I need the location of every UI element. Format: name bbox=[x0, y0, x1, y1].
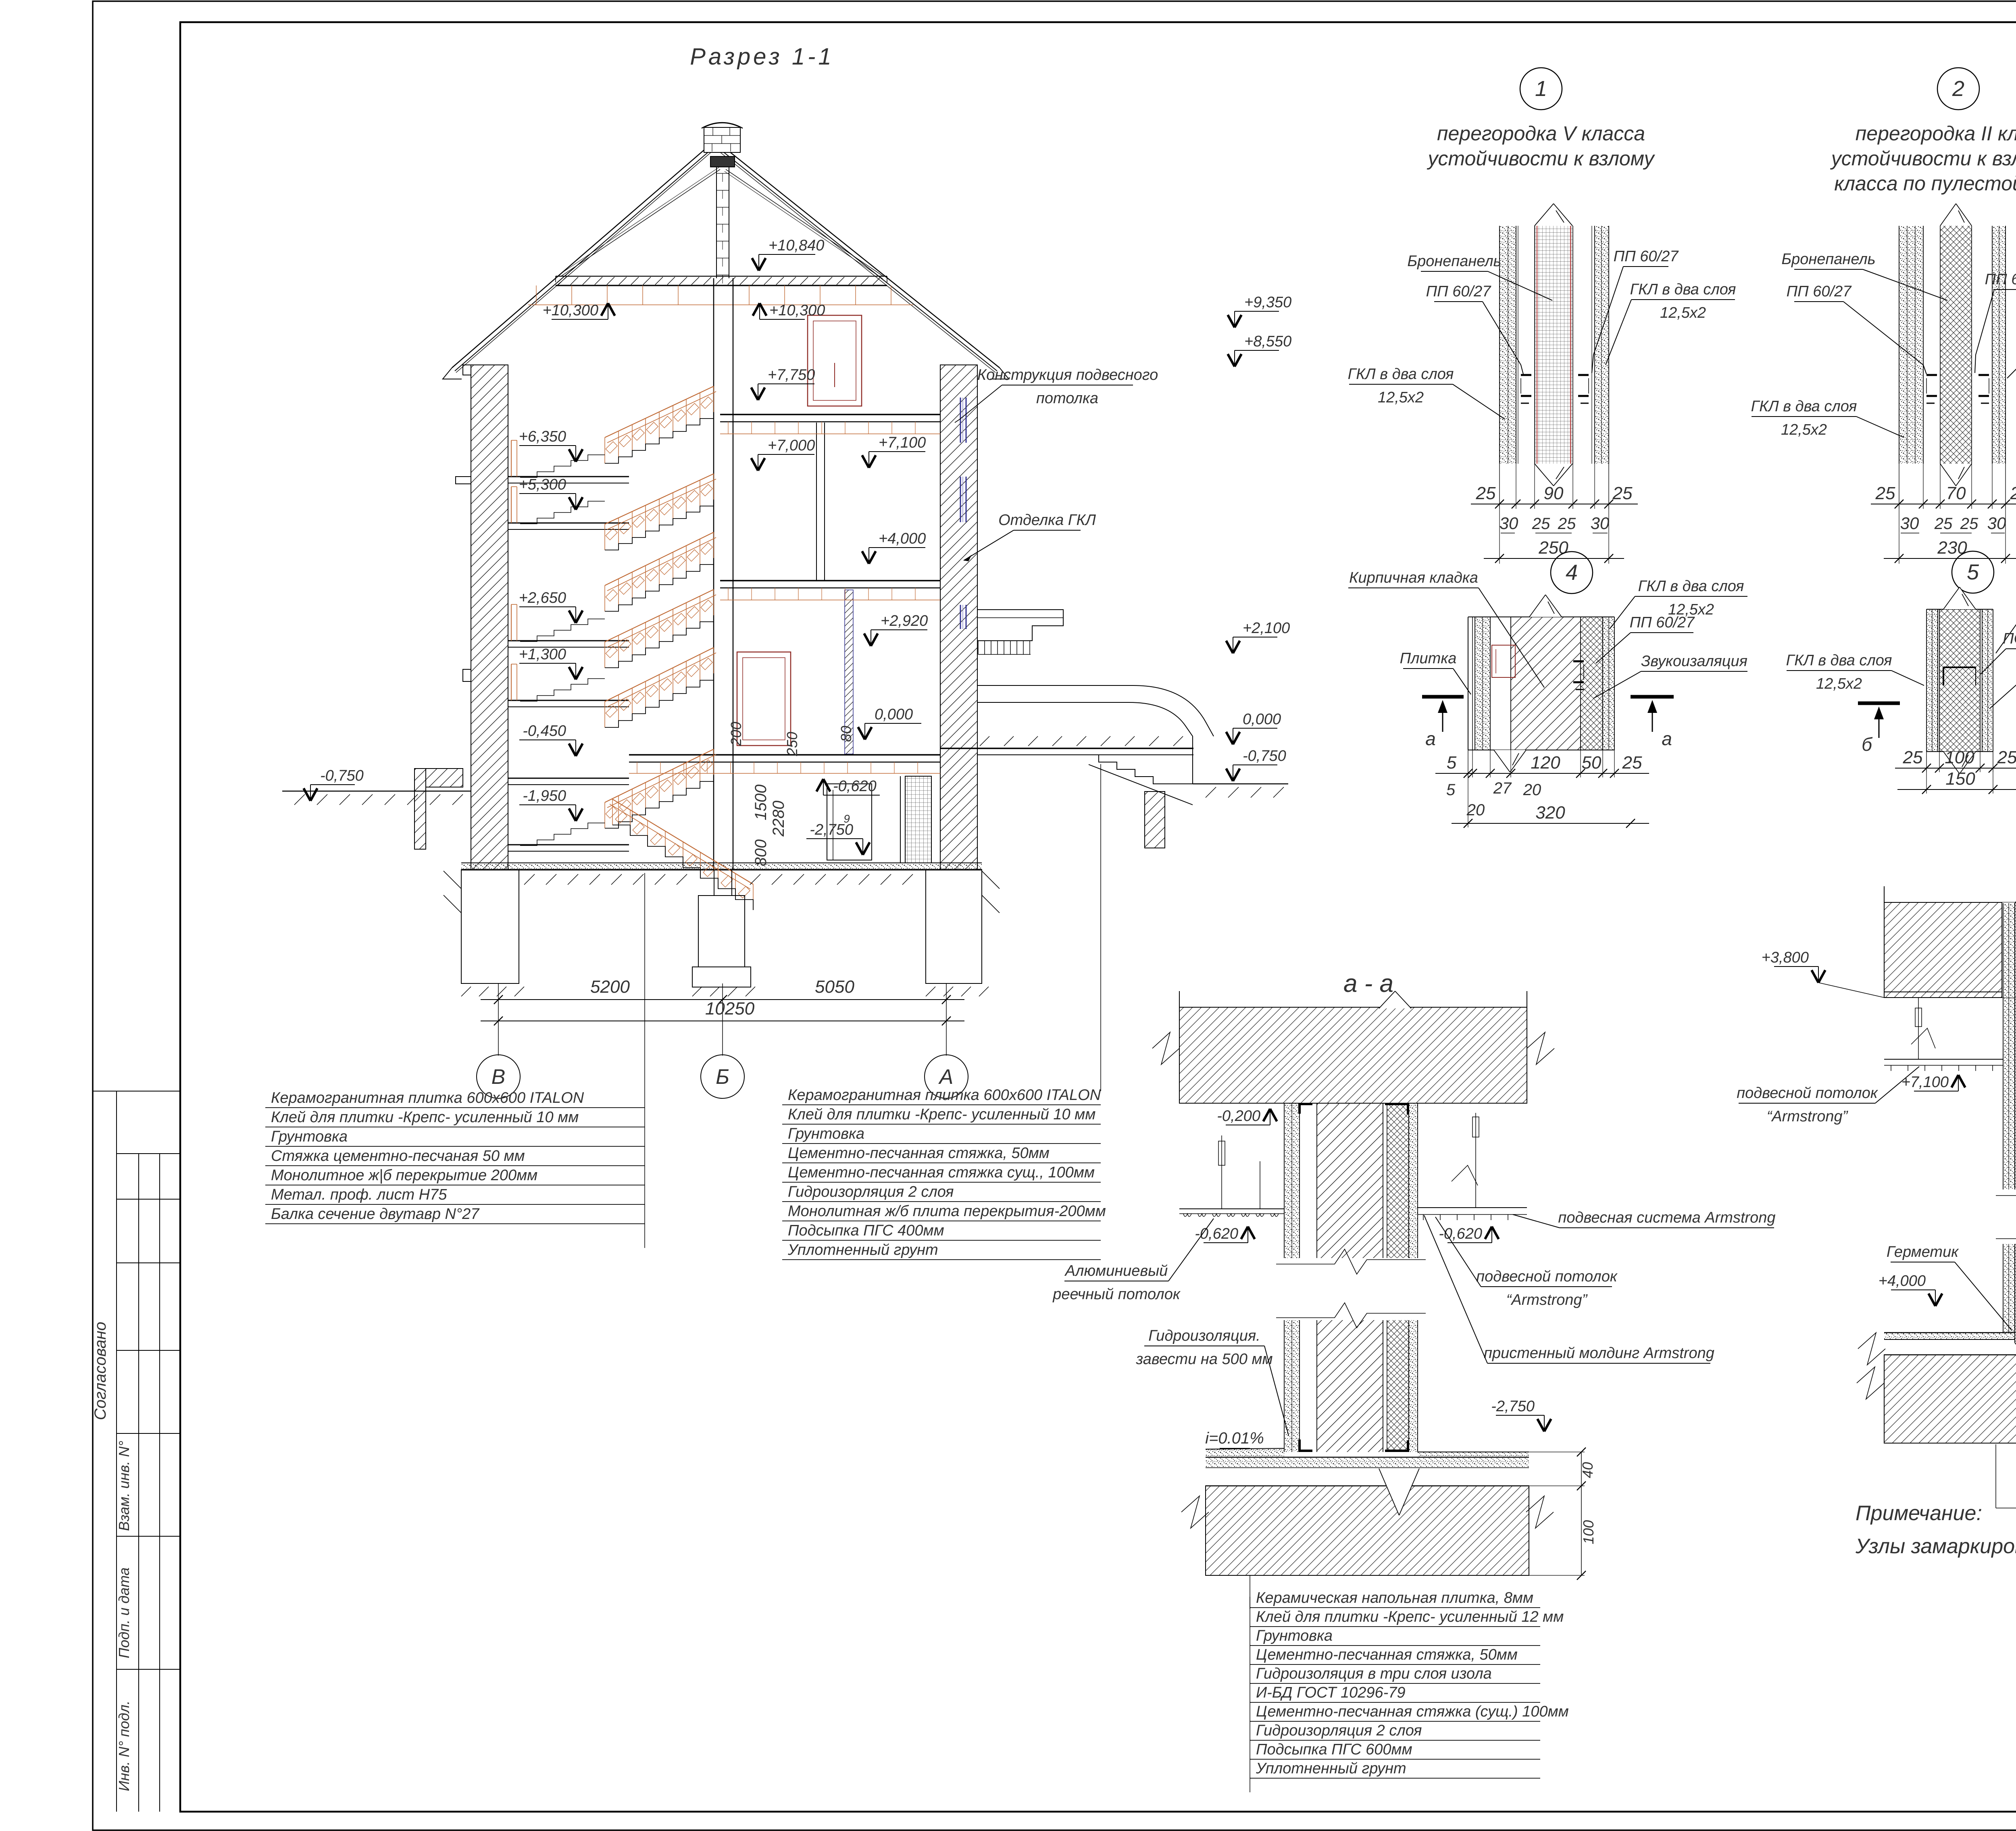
svg-text:Грунтовка: Грунтовка bbox=[271, 1128, 348, 1145]
svg-text:“Armstrong”: “Armstrong” bbox=[1767, 1108, 1849, 1125]
svg-text:Грунтовка: Грунтовка bbox=[1256, 1627, 1333, 1644]
svg-text:устойчивости к взлому: устойчивости к взлому bbox=[1427, 147, 1656, 170]
svg-text:+7,100: +7,100 bbox=[879, 434, 926, 451]
svg-text:-2,750: -2,750 bbox=[1491, 1398, 1535, 1415]
svg-text:Разрез 1-1: Разрез 1-1 bbox=[690, 44, 834, 70]
svg-text:25: 25 bbox=[1532, 515, 1550, 533]
svg-text:потолка: потолка bbox=[1036, 390, 1098, 407]
svg-text:Плитка: Плитка bbox=[1400, 650, 1457, 667]
svg-text:Б: Б bbox=[716, 1065, 729, 1089]
svg-text:10250: 10250 bbox=[705, 999, 755, 1019]
svg-text:25: 25 bbox=[1934, 515, 1953, 533]
svg-text:-0,200: -0,200 bbox=[1217, 1108, 1260, 1125]
svg-text:25: 25 bbox=[2010, 483, 2016, 503]
svg-text:2: 2 bbox=[1952, 77, 1964, 101]
svg-text:“Armstrong”: “Armstrong” bbox=[1506, 1291, 1588, 1308]
svg-text:Клей для плитки -Крепс- усилен: Клей для плитки -Крепс- усиленный 10 мм bbox=[788, 1106, 1095, 1123]
svg-text:25: 25 bbox=[1558, 515, 1576, 533]
svg-text:-0,620: -0,620 bbox=[1439, 1225, 1482, 1242]
svg-text:Монолитная ж/б плита перекрыт: Монолитная ж/б плита перекрытия-200мм bbox=[788, 1203, 1106, 1220]
svg-text:1: 1 bbox=[1535, 77, 1547, 101]
svg-text:70: 70 bbox=[1946, 483, 1966, 503]
svg-text:1500: 1500 bbox=[752, 785, 770, 821]
svg-text:завести на 500 мм: завести на 500 мм bbox=[1135, 1351, 1272, 1368]
svg-text:-0,620: -0,620 bbox=[1195, 1225, 1238, 1242]
svg-text:Клей для плитки -Крепс- усилен: Клей для плитки -Крепс- усиленный 10 мм bbox=[271, 1109, 579, 1126]
svg-text:Цементно-песчанная стяжка (сущ: Цементно-песчанная стяжка (сущ.) 100мм bbox=[1256, 1703, 1569, 1720]
svg-text:ПС 100/50: ПС 100/50 bbox=[2003, 630, 2016, 647]
svg-text:Гидроизоляция.: Гидроизоляция. bbox=[1148, 1327, 1260, 1344]
svg-text:Уплотненный грунт: Уплотненный грунт bbox=[787, 1241, 938, 1258]
svg-text:Конструкция подвесного: Конструкция подвесного bbox=[977, 367, 1158, 383]
svg-text:ГКЛ в два слоя: ГКЛ в два слоя bbox=[1786, 652, 1892, 669]
svg-text:Согласовано: Согласовано bbox=[92, 1322, 109, 1420]
svg-text:20: 20 bbox=[1466, 801, 1485, 819]
svg-text:150: 150 bbox=[1945, 769, 1975, 789]
svg-text:80: 80 bbox=[838, 726, 854, 742]
svg-text:устойчивости к взлому и I: устойчивости к взлому и I bbox=[1830, 147, 2016, 170]
svg-text:Алюминиевый: Алюминиевый bbox=[1064, 1262, 1168, 1279]
svg-text:+10,300: +10,300 bbox=[769, 302, 825, 319]
svg-text:ГКЛ в два слоя: ГКЛ в два слоя bbox=[1638, 578, 1744, 595]
svg-text:30: 30 bbox=[1591, 514, 1610, 533]
svg-text:Уплотненный грунт: Уплотненный грунт bbox=[1256, 1760, 1406, 1777]
svg-text:-1,950: -1,950 bbox=[523, 787, 566, 804]
svg-text:подвесная система Armstrong: подвесная система Armstrong bbox=[1558, 1209, 1775, 1226]
svg-text:Кирпичная кладка: Кирпичная кладка bbox=[1349, 569, 1478, 586]
svg-text:Подп. и дата: Подп. и дата bbox=[116, 1567, 132, 1658]
svg-text:Подсыпка ПГС 400мм: Подсыпка ПГС 400мм bbox=[788, 1222, 944, 1239]
svg-text:Гидроизорляция 2 слоя: Гидроизорляция 2 слоя bbox=[788, 1183, 954, 1200]
svg-text:а: а bbox=[1662, 728, 1672, 749]
svg-text:30: 30 bbox=[1900, 514, 1919, 533]
svg-text:Герметик: Герметик bbox=[1887, 1244, 1959, 1260]
svg-text:2280: 2280 bbox=[770, 801, 787, 837]
svg-text:Керамогранитная плитка 600х60: Керамогранитная плитка 600х600 ITALON bbox=[271, 1089, 584, 1106]
svg-text:ГКЛ в два слоя: ГКЛ в два слоя bbox=[1630, 281, 1736, 298]
svg-text:-2,750: -2,750 bbox=[810, 821, 853, 838]
svg-text:Примечание:: Примечание: bbox=[1856, 1502, 1982, 1525]
svg-text:Бронепанель: Бронепанель bbox=[1407, 253, 1501, 270]
svg-text:120: 120 bbox=[1531, 753, 1560, 773]
svg-text:ПП 60/27: ПП 60/27 bbox=[1787, 283, 1852, 300]
svg-text:ПП 60/27: ПП 60/27 bbox=[1426, 283, 1492, 300]
svg-text:ПП 60/27: ПП 60/27 bbox=[1630, 614, 1695, 631]
svg-text:-0,450: -0,450 bbox=[523, 723, 566, 739]
svg-text:+7,750: +7,750 bbox=[768, 367, 815, 383]
svg-text:25: 25 bbox=[1903, 748, 1923, 767]
svg-text:+6,350: +6,350 bbox=[519, 428, 566, 445]
svg-text:ГКЛ в два слоя: ГКЛ в два слоя bbox=[1751, 398, 1857, 415]
svg-text:30: 30 bbox=[1987, 514, 2006, 533]
svg-text:90: 90 bbox=[1544, 483, 1564, 503]
svg-text:+4,000: +4,000 bbox=[1879, 1273, 1926, 1289]
svg-text:12,5х2: 12,5х2 bbox=[1660, 304, 1706, 321]
svg-text:+5,300: +5,300 bbox=[519, 476, 566, 493]
svg-text:27: 27 bbox=[1493, 779, 1512, 797]
svg-text:Монолитное ж|б перекрытие 200м: Монолитное ж|б перекрытие 200мм bbox=[271, 1167, 537, 1184]
svg-text:класса по пулестойкости: класса по пулестойкости bbox=[1834, 172, 2016, 195]
svg-text:-0,620: -0,620 bbox=[833, 778, 877, 795]
svg-text:12,5х2: 12,5х2 bbox=[1378, 389, 1424, 406]
svg-text:Инв. N° подл.: Инв. N° подл. bbox=[116, 1701, 132, 1791]
svg-text:50: 50 bbox=[1582, 753, 1602, 773]
svg-text:Цементно-песчанная стяжка, 50м: Цементно-песчанная стяжка, 50мм bbox=[788, 1145, 1050, 1162]
svg-text:перегородка II класса: перегородка II класса bbox=[1856, 122, 2016, 145]
svg-text:Звукоизаляция: Звукоизаляция bbox=[1641, 653, 1747, 670]
svg-text:Узлы замаркированы на листах 1: Узлы замаркированы на листах 15, 16 и 17 bbox=[1855, 1535, 2016, 1558]
svg-text:Гидроизоляция в три слоя изола: Гидроизоляция в три слоя изола bbox=[1256, 1665, 1492, 1682]
svg-text:320: 320 bbox=[1535, 803, 1565, 823]
svg-text:+7,000: +7,000 bbox=[768, 437, 815, 454]
svg-text:250: 250 bbox=[784, 732, 800, 756]
svg-text:25: 25 bbox=[1612, 483, 1633, 503]
svg-text:25: 25 bbox=[1875, 483, 1895, 503]
svg-text:800: 800 bbox=[752, 839, 770, 867]
svg-text:-0,750: -0,750 bbox=[1243, 748, 1286, 764]
svg-text:И-БД ГОСТ 10296-79: И-БД ГОСТ 10296-79 bbox=[1256, 1684, 1406, 1701]
svg-text:5: 5 bbox=[1447, 753, 1457, 773]
svg-text:А: А bbox=[938, 1065, 954, 1089]
svg-text:В: В bbox=[492, 1065, 506, 1089]
svg-text:Бронепанель: Бронепанель bbox=[1781, 251, 1875, 268]
svg-text:а - а: а - а bbox=[1343, 970, 1393, 998]
svg-text:Цементно-песчанная стяжка, 50м: Цементно-песчанная стяжка, 50мм bbox=[1256, 1646, 1518, 1663]
svg-text:100: 100 bbox=[1580, 1520, 1597, 1544]
svg-text:100: 100 bbox=[1945, 748, 1974, 767]
svg-text:Керамогранитная плитка 600х60: Керамогранитная плитка 600х600 ITALON bbox=[788, 1087, 1101, 1104]
svg-text:ГКЛ в два слоя: ГКЛ в два слоя bbox=[1348, 366, 1454, 383]
svg-text:+3,800: +3,800 bbox=[1762, 949, 1809, 966]
svg-text:+2,100: +2,100 bbox=[1243, 620, 1290, 637]
svg-text:Подсыпка ПГС 600мм: Подсыпка ПГС 600мм bbox=[1256, 1741, 1412, 1758]
svg-text:ПП 60/27: ПП 60/27 bbox=[1614, 248, 1679, 265]
svg-text:5200: 5200 bbox=[590, 977, 630, 997]
svg-text:+1,300: +1,300 bbox=[519, 646, 566, 663]
svg-text:-0,750: -0,750 bbox=[320, 767, 364, 784]
svg-text:Грунтовка: Грунтовка bbox=[788, 1125, 864, 1142]
svg-text:+2,650: +2,650 bbox=[519, 590, 566, 606]
svg-text:+10,300: +10,300 bbox=[543, 302, 598, 319]
svg-text:i=0.01%: i=0.01% bbox=[1205, 1429, 1264, 1447]
svg-text:25: 25 bbox=[1476, 483, 1496, 503]
svg-text:Керамическая напольная плитка,: Керамическая напольная плитка, 8мм bbox=[1256, 1589, 1533, 1606]
svg-text:20: 20 bbox=[1523, 781, 1541, 799]
svg-text:0,000: 0,000 bbox=[875, 706, 913, 723]
svg-text:40: 40 bbox=[1579, 1462, 1596, 1478]
svg-text:5050: 5050 bbox=[815, 977, 854, 997]
svg-text:30: 30 bbox=[1500, 514, 1518, 533]
svg-text:перегородка V класса: перегородка V класса bbox=[1437, 122, 1645, 145]
svg-text:подвесной потолок: подвесной потолок bbox=[1476, 1268, 1618, 1285]
svg-text:б: б bbox=[1862, 734, 1873, 755]
svg-text:+2,920: +2,920 bbox=[881, 612, 928, 629]
svg-text:+10,840: +10,840 bbox=[768, 237, 824, 254]
svg-text:Клей для плитки -Крепс- усилен: Клей для плитки -Крепс- усиленный 12 мм bbox=[1256, 1608, 1564, 1625]
svg-text:Отделка ГКЛ: Отделка ГКЛ bbox=[998, 512, 1096, 529]
svg-text:Взам. инв. N°: Взам. инв. N° bbox=[116, 1441, 132, 1531]
svg-text:230: 230 bbox=[1937, 538, 1967, 558]
svg-text:Стяжка цементно-песчаная 50 мм: Стяжка цементно-песчаная 50 мм bbox=[271, 1148, 525, 1164]
svg-text:250: 250 bbox=[1538, 538, 1568, 558]
svg-text:ПП 60/27: ПП 60/27 bbox=[1985, 271, 2016, 288]
svg-text:200: 200 bbox=[728, 722, 744, 746]
svg-text:Гидроизорляция 2 слоя: Гидроизорляция 2 слоя bbox=[1256, 1722, 1422, 1739]
svg-text:пристенный молдинг Armstrong: пристенный молдинг Armstrong bbox=[1484, 1345, 1714, 1362]
svg-text:+9,350: +9,350 bbox=[1244, 294, 1291, 311]
svg-text:подвесной потолок: подвесной потолок bbox=[1737, 1085, 1879, 1102]
svg-text:25: 25 bbox=[1997, 748, 2016, 767]
svg-text:12,5х2: 12,5х2 bbox=[1781, 421, 1827, 438]
svg-text:Балка сечение двутавр N°27: Балка сечение двутавр N°27 bbox=[271, 1206, 480, 1223]
svg-text:+7,100: +7,100 bbox=[1901, 1074, 1949, 1091]
svg-text:4: 4 bbox=[1566, 560, 1578, 585]
svg-text:25: 25 bbox=[1622, 753, 1642, 773]
svg-text:25: 25 bbox=[1960, 515, 1979, 533]
svg-text:12,5х2: 12,5х2 bbox=[1816, 675, 1862, 692]
svg-text:5: 5 bbox=[1446, 781, 1456, 799]
svg-text:Цементно-песчанная стяжка сущ.: Цементно-песчанная стяжка сущ., 100мм bbox=[788, 1164, 1095, 1181]
svg-text:а: а bbox=[1425, 728, 1436, 749]
svg-text:Метал. проф. лист Н75: Метал. проф. лист Н75 bbox=[271, 1186, 447, 1203]
svg-text:реечный потолок: реечный потолок bbox=[1052, 1286, 1181, 1303]
svg-text:5: 5 bbox=[1967, 560, 1979, 584]
svg-text:+4,000: +4,000 bbox=[879, 530, 926, 547]
svg-text:+8,550: +8,550 bbox=[1244, 333, 1291, 350]
svg-text:0,000: 0,000 bbox=[1243, 711, 1281, 728]
